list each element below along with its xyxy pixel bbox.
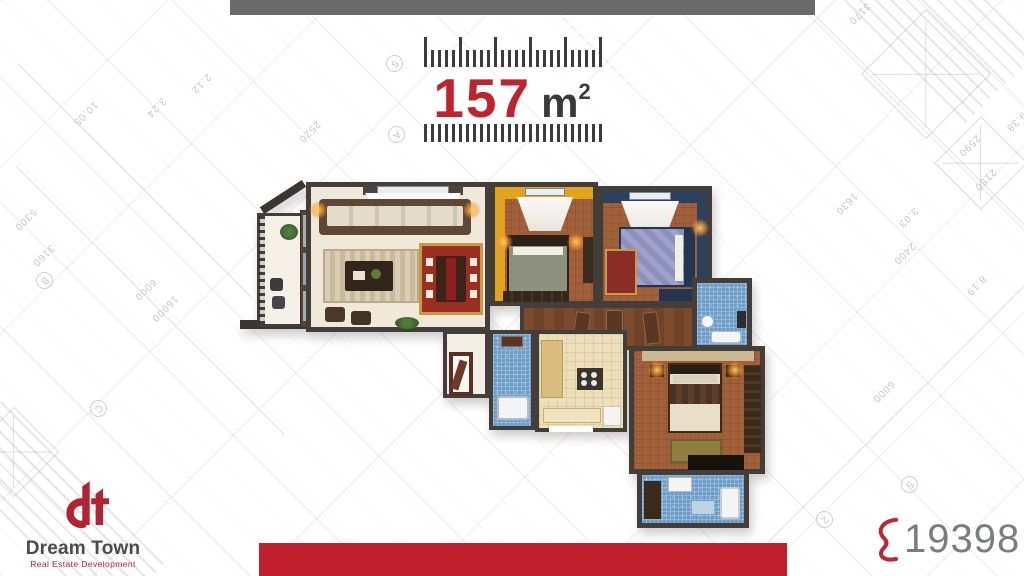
bed-headboard — [670, 365, 720, 374]
balcony-plant — [280, 224, 298, 240]
bed-headboard — [509, 237, 567, 246]
lamp-glow — [648, 361, 666, 379]
bathroom-center — [489, 330, 535, 430]
dining-rug — [419, 243, 483, 315]
stove-burner — [591, 380, 597, 386]
balcony — [257, 213, 305, 327]
logo: Dream Town Real Estate Development — [22, 476, 144, 569]
bed-headboard — [684, 229, 693, 285]
master-tv-unit — [688, 455, 744, 470]
bathtub — [497, 396, 529, 420]
floor-plan — [0, 0, 1024, 576]
blue-room-rug — [605, 249, 637, 295]
bathroom-bottom — [637, 470, 749, 528]
kitchen-stove — [577, 368, 603, 390]
shower-tray — [720, 487, 740, 519]
front-door-leaf — [451, 359, 468, 390]
lamp-glow — [309, 201, 327, 219]
stove-burner — [581, 372, 587, 378]
logo-tagline: Real Estate Development — [22, 559, 144, 569]
dining-table — [436, 256, 466, 302]
table-runner — [446, 258, 456, 300]
bath-mat — [692, 501, 714, 514]
yellow-curtain — [517, 197, 573, 231]
kitchen — [535, 330, 627, 432]
master-wall-band — [642, 351, 754, 361]
bed-pillows — [513, 247, 563, 255]
lamp-glow — [495, 233, 513, 251]
dining-chair — [470, 290, 477, 298]
yellow-window — [525, 188, 565, 196]
bathroom-top-right — [692, 278, 752, 350]
dining-chair — [426, 290, 433, 298]
bathtub — [711, 331, 741, 343]
living-sofa — [319, 199, 471, 235]
front-door-frame — [449, 352, 473, 396]
dining-chair — [426, 274, 433, 282]
hotline: 19398 — [872, 514, 1020, 564]
dt-monogram-icon — [57, 476, 109, 534]
balcony-chair — [270, 278, 283, 291]
living-room — [306, 182, 490, 332]
bathroom-mirror — [737, 311, 746, 328]
kitchen-window — [549, 426, 593, 432]
dining-chair — [470, 274, 477, 282]
table-decor — [353, 271, 365, 280]
coffee-table — [345, 261, 393, 291]
yellow-tv-unit — [583, 237, 593, 283]
bed-pillows — [673, 375, 717, 383]
master-wardrobe — [744, 365, 761, 453]
bed-blanket — [670, 384, 720, 404]
dining-chair — [426, 258, 433, 266]
hallway-door — [642, 311, 661, 345]
master-bedroom — [629, 346, 765, 474]
lamp-glow — [691, 219, 709, 237]
stove-burner — [581, 380, 587, 386]
table-plant — [371, 269, 381, 279]
master-bed — [668, 363, 722, 433]
washer — [668, 477, 692, 492]
entry-hall — [443, 330, 489, 398]
blue-window — [629, 192, 671, 200]
yellow-wardrobe — [503, 291, 569, 302]
bed-pillows — [675, 235, 683, 281]
bathroom-door — [501, 336, 523, 347]
lamp-glow — [463, 201, 481, 219]
ottoman — [325, 307, 345, 322]
lamp-glow — [726, 361, 744, 379]
ottoman — [351, 311, 371, 325]
bedroom-yellow — [490, 182, 598, 306]
balcony-chair — [272, 296, 285, 309]
balcony-railing — [259, 216, 265, 324]
bottom-accent-bar — [259, 543, 787, 576]
sofa-cushions — [327, 206, 463, 226]
floor-plant — [395, 317, 419, 329]
kitchen-counter-lit — [543, 408, 601, 423]
kitchen-counter — [541, 340, 563, 398]
bathroom-sink — [701, 315, 714, 328]
living-window — [377, 186, 449, 194]
outer-wall — [260, 180, 306, 214]
marketing-slide: 10.053.242.1225205300316060001600031709.… — [0, 0, 1024, 576]
bathroom-cabinet — [644, 481, 661, 519]
stove-burner — [591, 372, 597, 378]
yellow-bed — [507, 235, 569, 293]
phone-icon — [872, 514, 904, 564]
logo-name: Dream Town — [22, 539, 144, 559]
hotline-number: 19398 — [904, 517, 1020, 562]
dining-chair — [470, 258, 477, 266]
refrigerator — [603, 406, 621, 426]
